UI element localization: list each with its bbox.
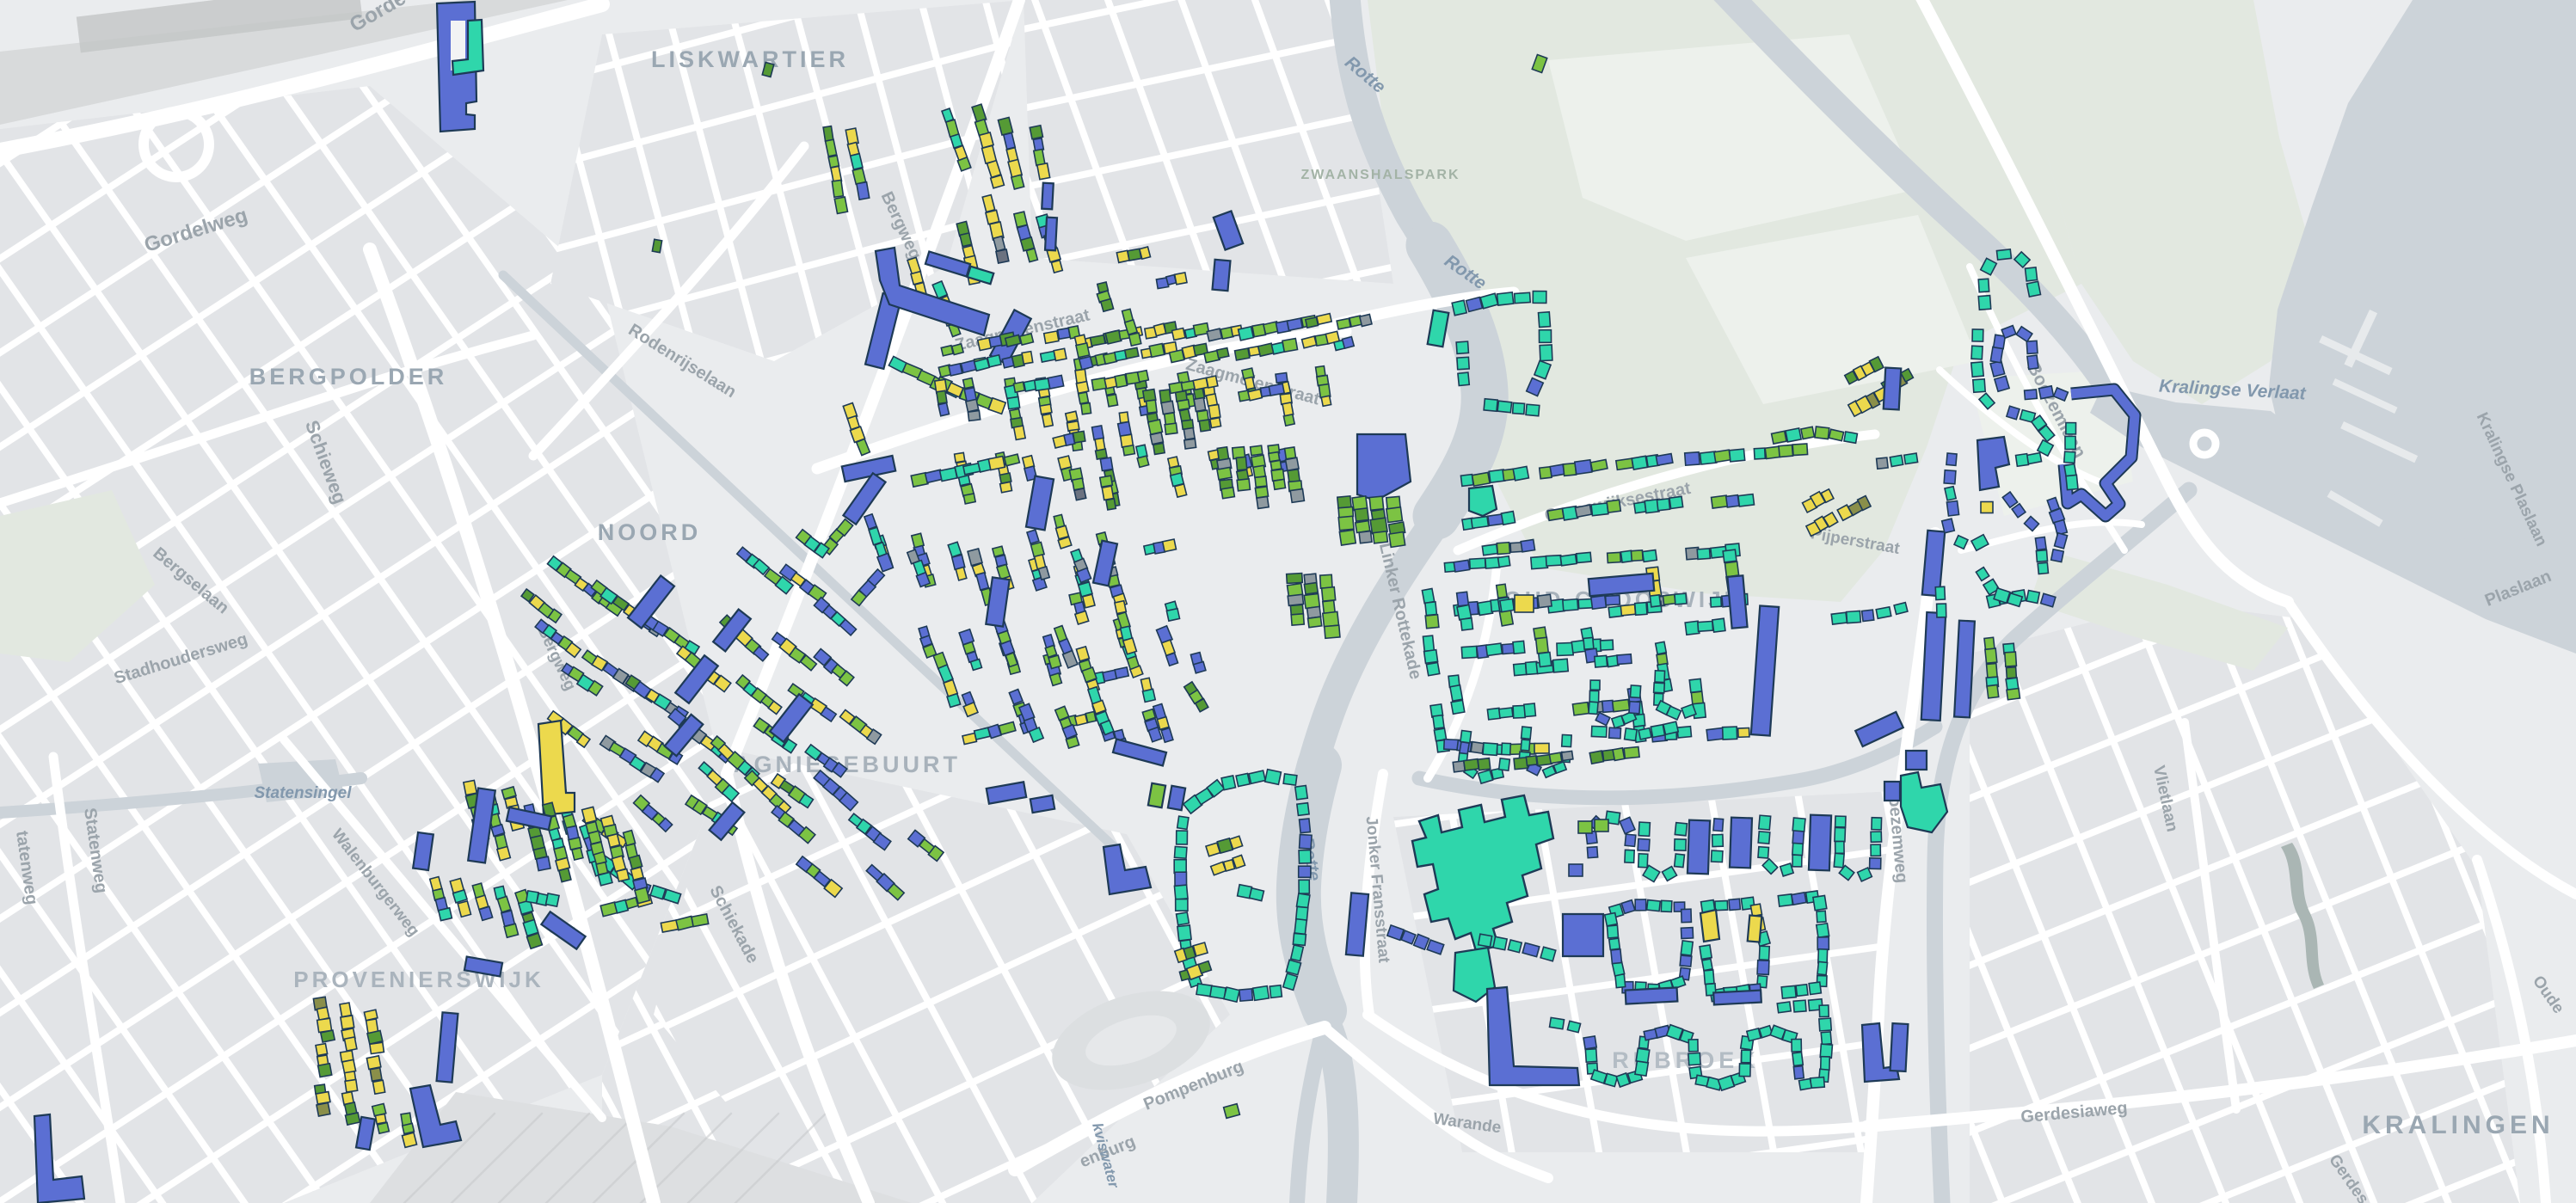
svg-text:ZWAANSHALSPARK: ZWAANSHALSPARK <box>1300 168 1460 182</box>
svg-text:LISKWARTIER: LISKWARTIER <box>651 46 849 72</box>
svg-text:RUBROEK: RUBROEK <box>1612 1047 1760 1073</box>
svg-text:NOORD: NOORD <box>598 519 702 545</box>
svg-text:PROVENIERSWIJK: PROVENIERSWIJK <box>293 967 544 992</box>
svg-text:AGNIESEBUURT: AGNIESEBUURT <box>734 752 961 777</box>
svg-text:BERGPOLDER: BERGPOLDER <box>249 364 448 390</box>
svg-text:Statensingel: Statensingel <box>255 784 353 802</box>
svg-text:KRALINGEN: KRALINGEN <box>2362 1111 2554 1139</box>
